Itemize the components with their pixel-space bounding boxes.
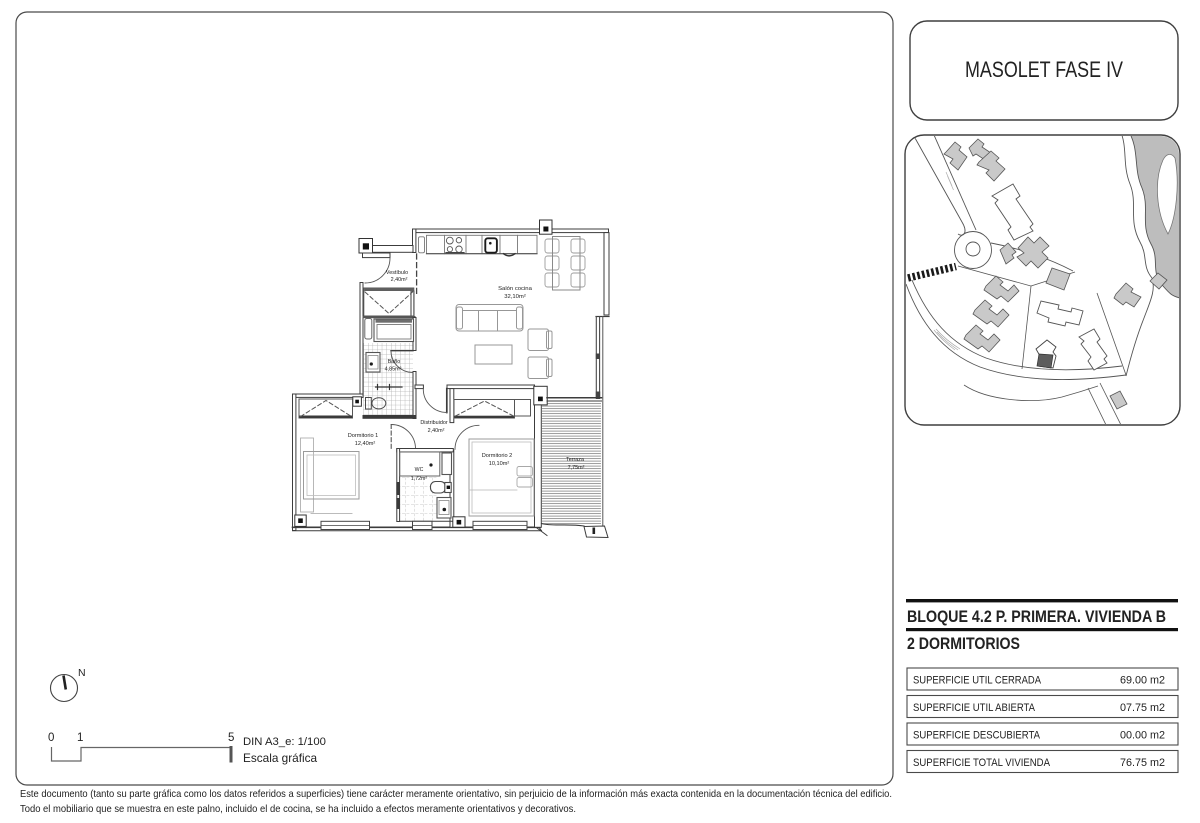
- svg-text:Escala gráfica: Escala gráfica: [243, 751, 318, 765]
- svg-text:Salón cocina: Salón cocina: [498, 286, 532, 292]
- svg-text:Todo el mobiliario que se mues: Todo el mobiliario que se muestra en est…: [20, 804, 576, 815]
- svg-text:SUPERFICIE TOTAL VIVIENDA: SUPERFICIE TOTAL VIVIENDA: [913, 757, 1050, 769]
- svg-text:07.75 m2: 07.75 m2: [1120, 702, 1165, 714]
- svg-text:Dormitorio 1: Dormitorio 1: [348, 433, 378, 439]
- svg-text:12,40m²: 12,40m²: [355, 441, 376, 447]
- svg-text:SUPERFICIE DESCUBIERTA: SUPERFICIE DESCUBIERTA: [913, 730, 1040, 742]
- svg-text:2,40m²: 2,40m²: [428, 428, 445, 434]
- svg-text:SUPERFICIE UTIL CERRADA: SUPERFICIE UTIL CERRADA: [913, 675, 1041, 687]
- svg-text:Este documento (tanto su parte: Este documento (tanto su parte gráfica c…: [20, 789, 892, 800]
- svg-text:WC: WC: [415, 467, 424, 473]
- svg-text:SUPERFICIE UTIL ABIERTA: SUPERFICIE UTIL ABIERTA: [913, 702, 1035, 714]
- svg-text:MASOLET FASE IV: MASOLET FASE IV: [965, 57, 1123, 82]
- svg-text:2 DORMITORIOS: 2 DORMITORIOS: [907, 635, 1020, 653]
- svg-text:76.75 m2: 76.75 m2: [1120, 757, 1165, 769]
- svg-text:Distribuidor: Distribuidor: [420, 420, 447, 426]
- svg-text:00.00 m2: 00.00 m2: [1120, 730, 1165, 742]
- svg-text:BLOQUE 4.2 P. PRIMERA. VIVIEND: BLOQUE 4.2 P. PRIMERA. VIVIENDA B: [907, 608, 1166, 626]
- svg-text:7,75m²: 7,75m²: [568, 465, 585, 471]
- svg-text:0: 0: [48, 732, 54, 744]
- svg-text:1: 1: [77, 732, 83, 744]
- svg-text:Terraza: Terraza: [566, 457, 584, 463]
- svg-text:4,85m²: 4,85m²: [385, 367, 402, 373]
- svg-text:Dormitorio 2: Dormitorio 2: [482, 453, 512, 459]
- svg-text:2,40m²: 2,40m²: [391, 277, 408, 283]
- svg-text:5: 5: [228, 732, 234, 744]
- svg-text:Baño: Baño: [388, 359, 401, 365]
- svg-text:N: N: [78, 667, 86, 679]
- svg-text:69.00 m2: 69.00 m2: [1120, 675, 1165, 687]
- svg-text:10,10m²: 10,10m²: [489, 461, 510, 467]
- svg-text:1,72m²: 1,72m²: [411, 476, 427, 482]
- svg-text:32,10m²: 32,10m²: [504, 294, 526, 300]
- svg-text:Vestíbulo: Vestíbulo: [386, 270, 408, 276]
- svg-text:DIN A3_e: 1/100: DIN A3_e: 1/100: [243, 736, 326, 748]
